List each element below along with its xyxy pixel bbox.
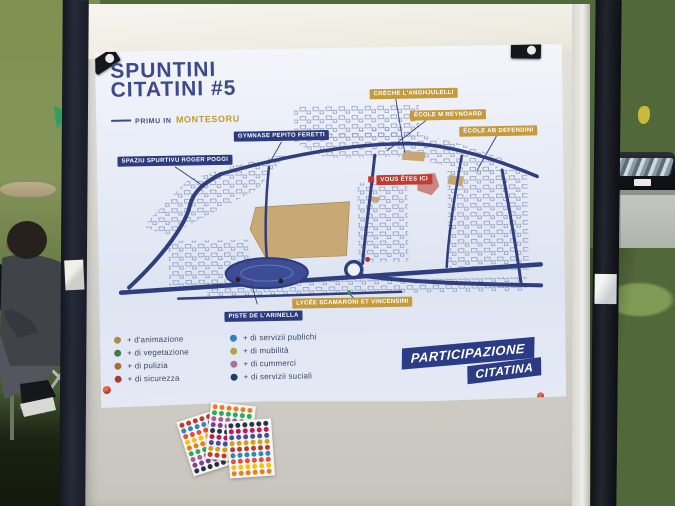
legend-dot	[230, 335, 237, 342]
running-track	[226, 257, 309, 288]
map-label-piste-arinella: PISTE DE L'ARINELLA	[224, 311, 302, 322]
roundabout	[346, 261, 362, 277]
legend-dot	[231, 374, 238, 381]
map-label-lycee: LYCÉE SCAMARONI ET VINCENSINI	[292, 297, 412, 309]
tape-on-right-post	[594, 274, 616, 304]
highlight-zones	[249, 150, 466, 260]
map-label-spaziu-spurtivu: SPAZIU SPURTIVU ROGER POGGI	[117, 155, 232, 167]
legend-dot	[115, 376, 122, 383]
frame-post-left	[59, 0, 89, 506]
red-sticker-dot	[103, 386, 111, 394]
map-label-ecole-reynoard: ÉCOLE M REYNOARD	[410, 109, 486, 120]
outdoor-scene: SPUNTINI CITATINI #5 PRIMU IN MONTESORU	[0, 0, 675, 506]
map-label-gymnase: GYMNASE PEPITO FERETTI	[234, 130, 329, 142]
person-hair	[7, 221, 47, 259]
frame-post-right	[590, 0, 621, 506]
board-edge	[572, 4, 590, 506]
legend-left-column: + d'animazione + di vegetazione + di pul…	[114, 332, 233, 386]
legend-item: + di servizii suciali	[231, 369, 349, 384]
legend-dot	[230, 361, 237, 368]
sticker-sheet	[226, 418, 275, 478]
map-poster: SPUNTINI CITATINI #5 PRIMU IN MONTESORU	[95, 44, 568, 408]
dirt-path	[0, 182, 56, 197]
tape-on-left-post	[64, 260, 84, 291]
car-windshield	[614, 158, 674, 176]
license-plate	[634, 179, 651, 186]
map-label-ecole-defendini: ÉCOLE AB DEFENDINI	[459, 125, 537, 136]
legend-dot	[114, 350, 121, 357]
map-label-creche: CRÈCHE L'ANGHJULELLI	[370, 88, 458, 100]
legend-item: + di sicurezza	[115, 371, 233, 386]
map-label-vous-etes-ici: VOUS ÊTES ICI	[376, 174, 432, 185]
legend-dot	[114, 363, 121, 370]
magnet-clip-right	[511, 42, 541, 59]
sticker-sheets	[184, 402, 274, 500]
legend-right-column: + di servizii publichi + di mubilità + d…	[230, 330, 349, 384]
participation-badge: PARTICIPAZIONE CITATINA	[401, 334, 569, 388]
legend-dot	[230, 348, 237, 355]
legend-dot	[114, 337, 121, 344]
